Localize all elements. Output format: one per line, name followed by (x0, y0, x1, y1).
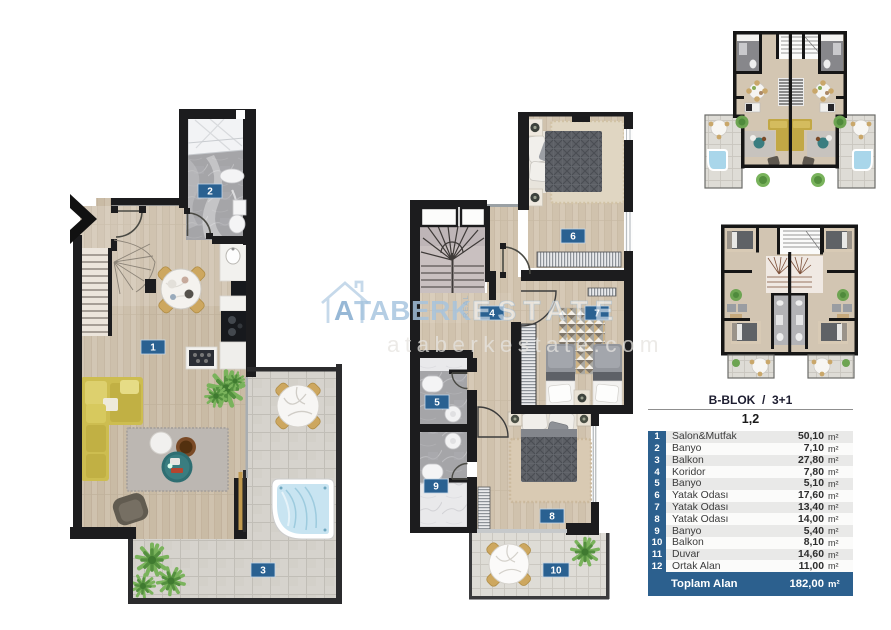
svg-text:2: 2 (207, 187, 213, 198)
svg-text:1: 1 (150, 343, 156, 354)
svg-text:9: 9 (433, 482, 439, 493)
svg-text:A: A (334, 295, 354, 326)
svg-text:ESTATE: ESTATE (472, 295, 620, 326)
svg-text:8: 8 (549, 512, 555, 523)
svg-text:6: 6 (570, 232, 576, 243)
svg-text:REAL: REAL (461, 294, 470, 318)
svg-text:5: 5 (434, 398, 440, 409)
svg-text:ataberkestate.com: ataberkestate.com (387, 332, 664, 357)
svg-text:TABERK: TABERK (354, 295, 472, 326)
svg-text:10: 10 (550, 566, 562, 577)
svg-text:3: 3 (260, 566, 266, 577)
